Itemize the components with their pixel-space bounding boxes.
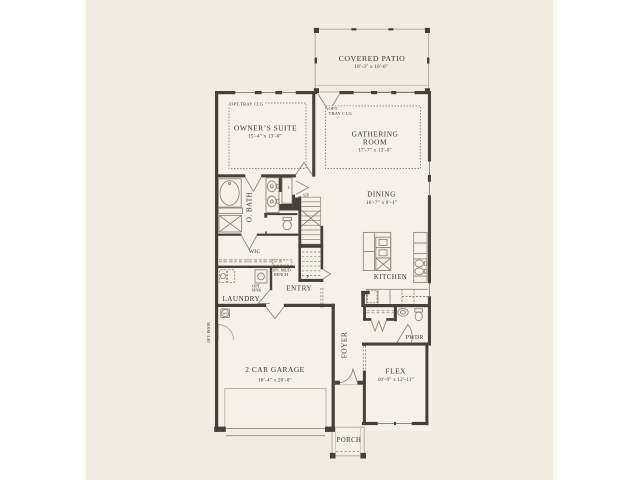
- svg-text:16′-7″ x 9′-1″: 16′-7″ x 9′-1″: [366, 200, 397, 206]
- svg-text:KITCHEN: KITCHEN: [374, 274, 407, 281]
- svg-text:OPT. DOOR: OPT. DOOR: [206, 322, 211, 343]
- svg-text:15′-4″ x 13′-0″: 15′-4″ x 13′-0″: [248, 134, 282, 140]
- svg-text:COVERED PATIO: COVERED PATIO: [339, 54, 406, 63]
- svg-text:SINK: SINK: [252, 288, 262, 293]
- svg-text:WIC: WIC: [249, 249, 261, 255]
- svg-text:OPT.TRAY CLG: OPT.TRAY CLG: [230, 102, 264, 107]
- svg-text:10′-0″ x 12′-11″: 10′-0″ x 12′-11″: [378, 377, 414, 383]
- svg-text:18′-3″ x 10′-0″: 18′-3″ x 10′-0″: [354, 64, 388, 70]
- svg-text:ROOM: ROOM: [363, 138, 387, 147]
- svg-text:OWNER’S SUITE: OWNER’S SUITE: [234, 124, 297, 133]
- svg-text:ENTRY: ENTRY: [286, 285, 312, 293]
- svg-text:18′-4″ x 20′-0″: 18′-4″ x 20′-0″: [258, 377, 292, 383]
- svg-text:LAUNDRY: LAUNDRY: [223, 295, 261, 303]
- svg-text:17′-7″ x 13′-0″: 17′-7″ x 13′-0″: [358, 147, 392, 153]
- svg-text:DINING: DINING: [367, 191, 396, 199]
- svg-text:FLEX: FLEX: [386, 366, 407, 375]
- svg-text:UP: UP: [303, 192, 309, 197]
- svg-text:L: L: [288, 186, 290, 190]
- svg-text:P: P: [307, 275, 309, 279]
- svg-text:PWDR: PWDR: [406, 335, 424, 341]
- svg-text:O. BATH: O. BATH: [245, 192, 253, 222]
- svg-text:PORCH: PORCH: [337, 437, 362, 444]
- svg-text:BENCH: BENCH: [274, 272, 288, 277]
- svg-text:TRAY CLG: TRAY CLG: [329, 111, 353, 116]
- svg-text:2 CAR GARAGE: 2 CAR GARAGE: [245, 365, 304, 374]
- svg-text:WH: WH: [223, 311, 229, 315]
- svg-text:FOYER: FOYER: [340, 332, 349, 359]
